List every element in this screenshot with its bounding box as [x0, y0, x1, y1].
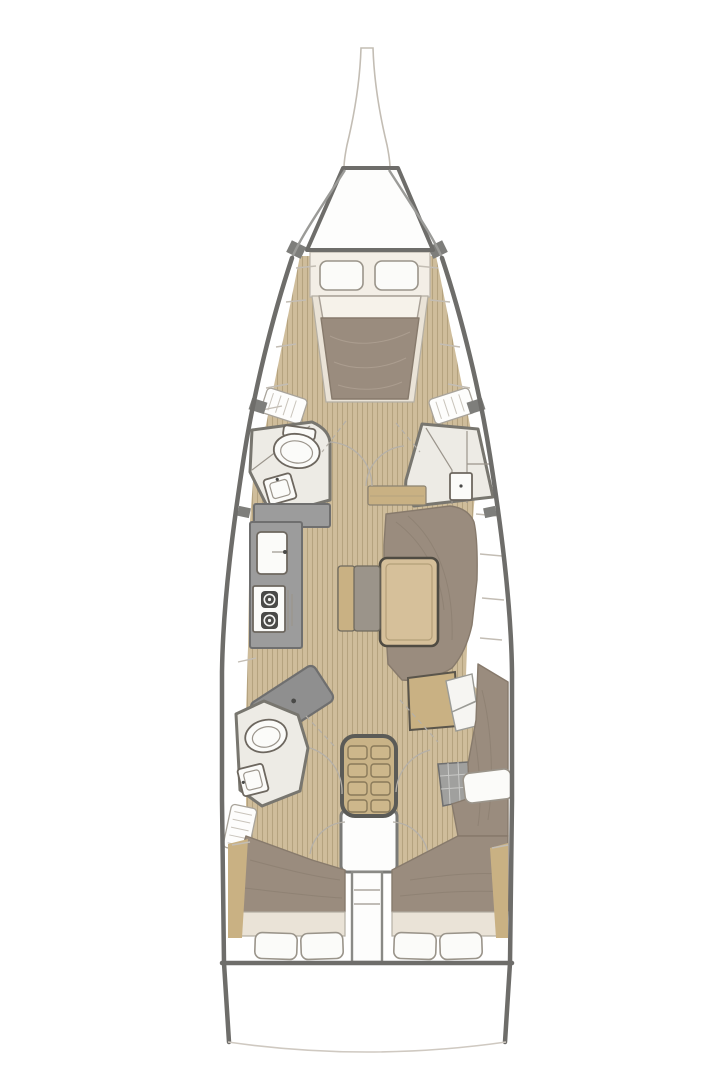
- pillow: [462, 768, 513, 804]
- engine-compartment: [341, 810, 397, 872]
- yacht-floor-plan-canvas: [0, 0, 720, 1080]
- bow-sprit: [344, 48, 390, 168]
- pillow: [301, 932, 344, 959]
- shower-seat: [450, 473, 472, 500]
- pillow: [394, 932, 437, 959]
- yacht-floor-plan: [0, 0, 720, 1080]
- pillow: [320, 261, 363, 290]
- pillow: [375, 261, 418, 290]
- aft-divider: [352, 872, 382, 962]
- pillow: [440, 932, 483, 959]
- sink-icon: [237, 763, 269, 796]
- pillow: [255, 932, 298, 959]
- galley-sink-icon: [257, 532, 287, 574]
- salon-bench: [338, 566, 380, 631]
- swim-platform-edge: [228, 1042, 506, 1052]
- salon-table: [380, 558, 438, 646]
